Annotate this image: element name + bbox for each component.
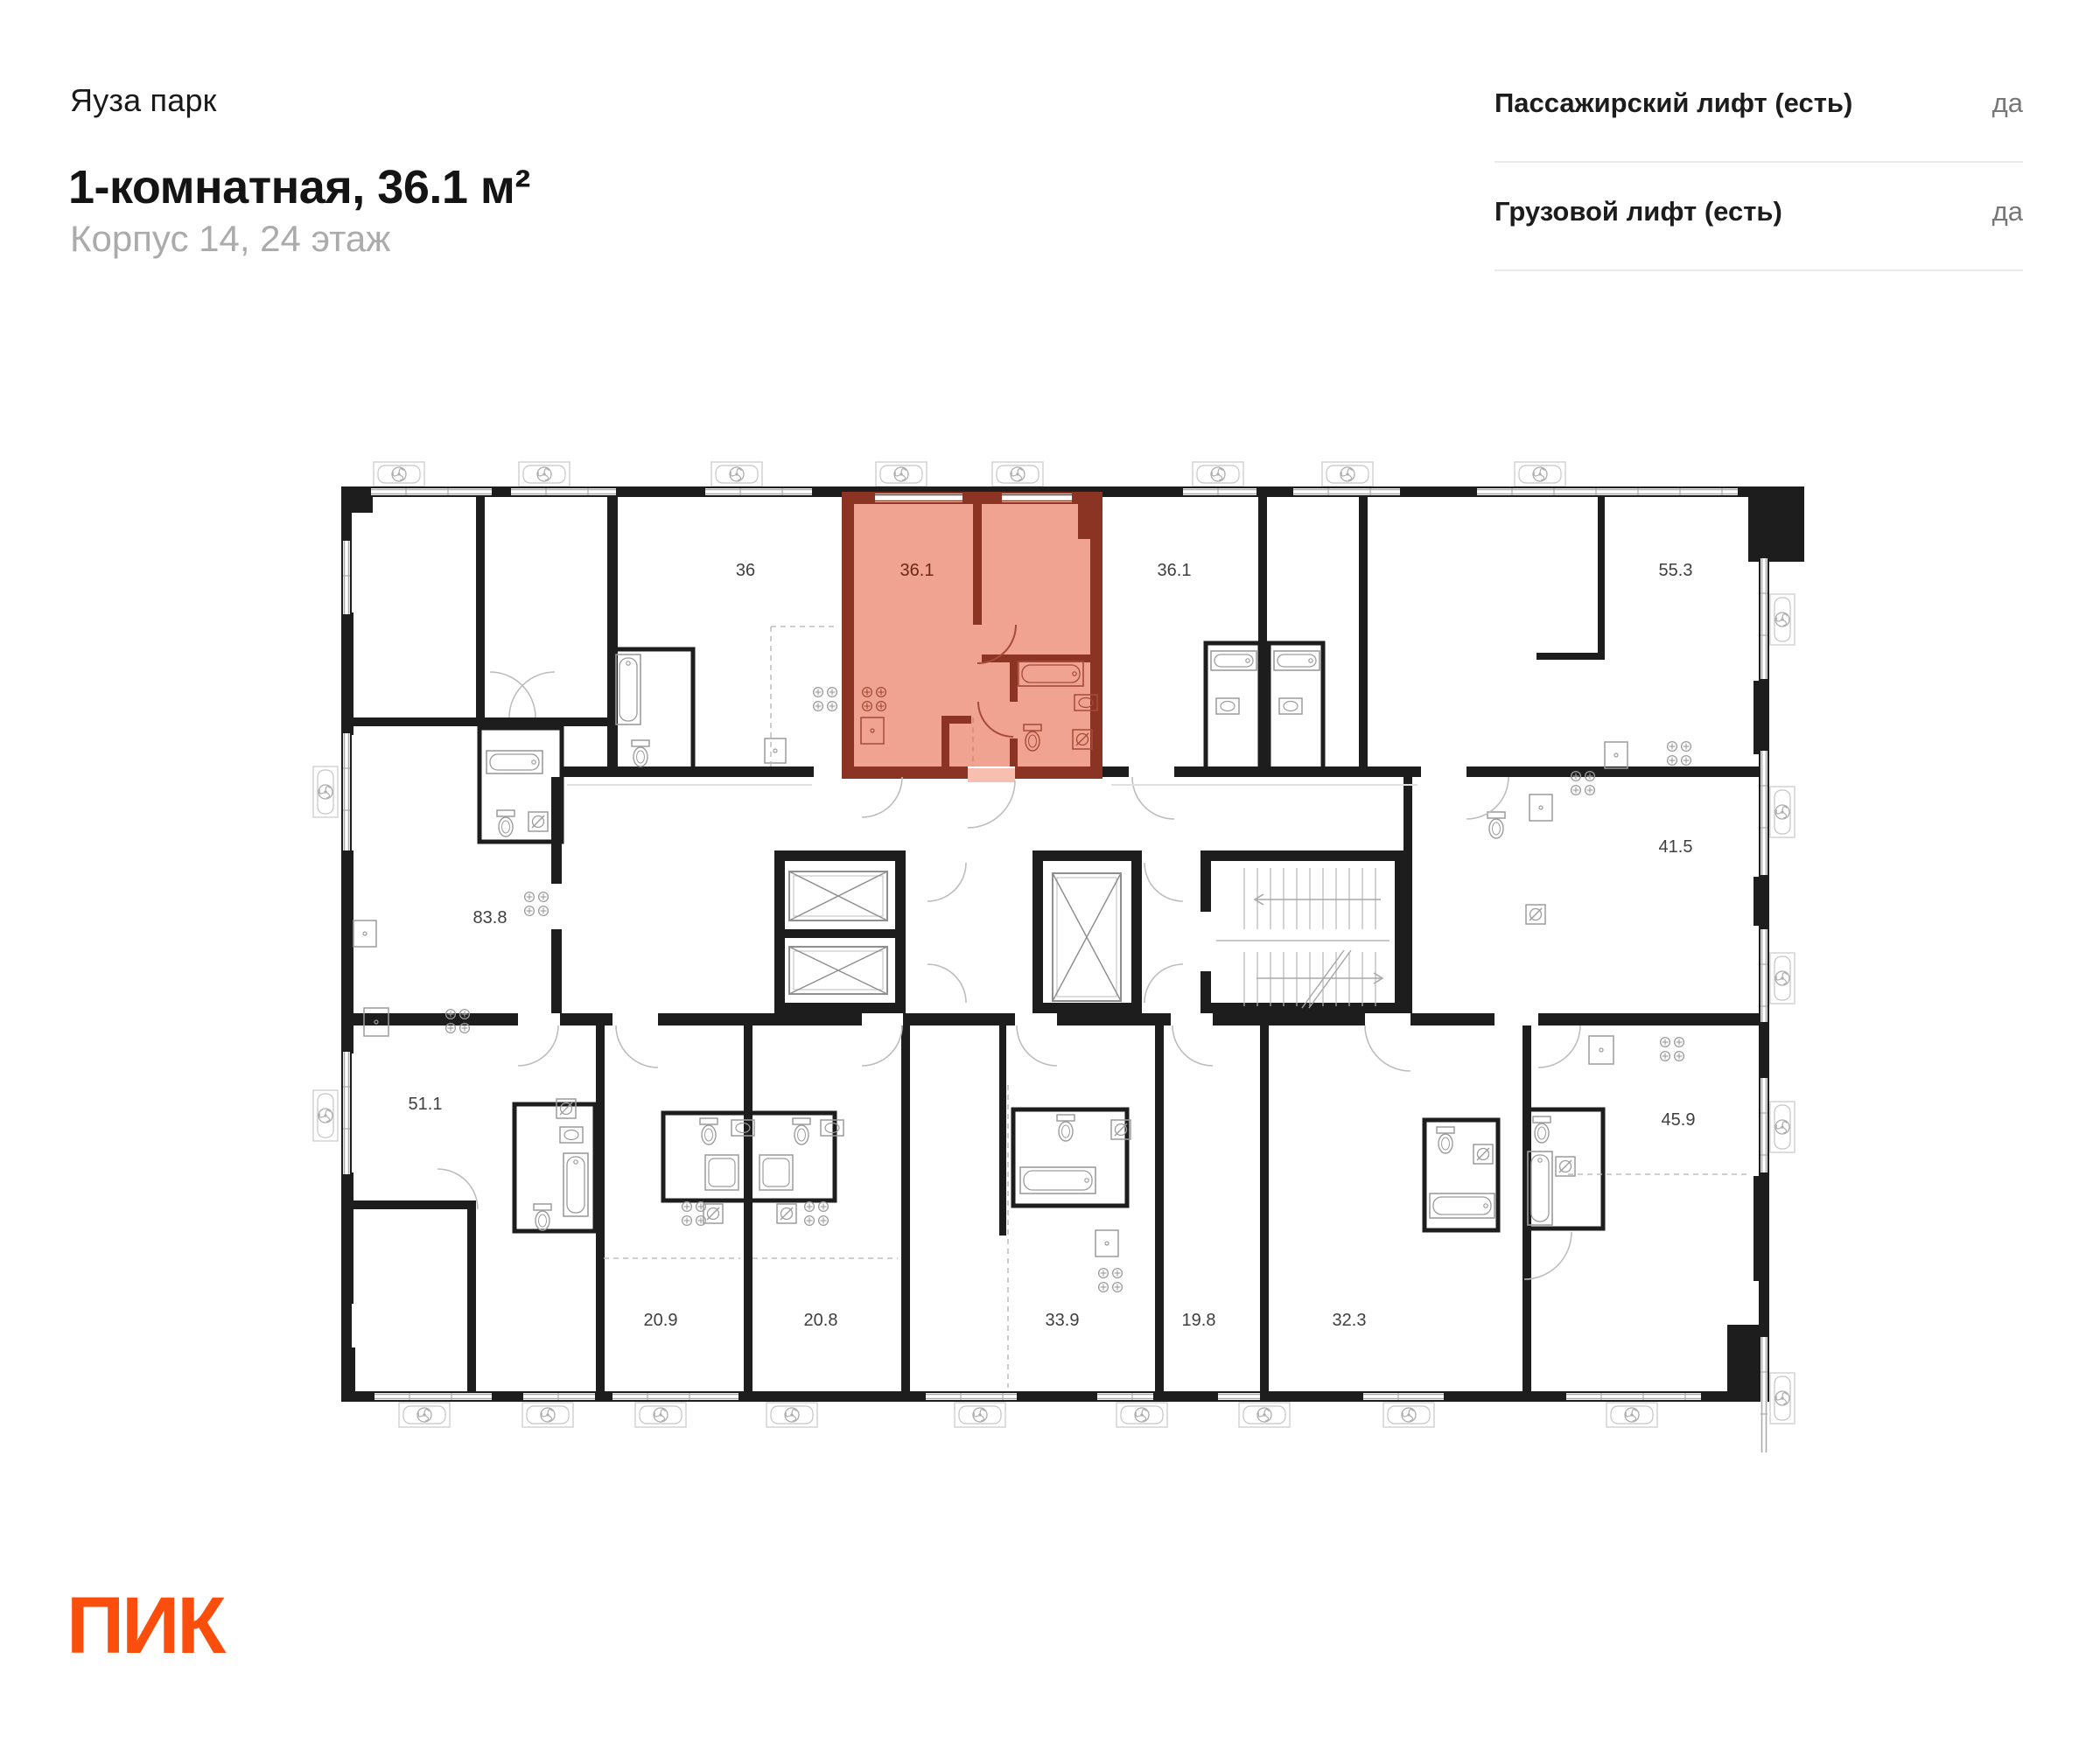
area-label: 33.9 <box>1046 1311 1080 1330</box>
passenger-elevator-value: да <box>1992 84 2023 122</box>
toilet-icon <box>1533 1116 1550 1143</box>
vent-box <box>1515 462 1565 486</box>
stove-icon <box>525 892 549 916</box>
apartment-subtitle: Корпус 14, 24 этаж <box>70 218 390 260</box>
vent-box <box>876 462 927 486</box>
vent-box <box>522 1403 573 1427</box>
area-label: 20.9 <box>644 1311 678 1330</box>
bathtub-icon <box>1430 1193 1494 1218</box>
kitchen-sink-icon <box>765 738 786 763</box>
shower-icon <box>705 1155 738 1190</box>
area-label: 41.5 <box>1659 837 1693 857</box>
vent-box <box>374 462 424 486</box>
vent-box <box>313 766 338 817</box>
door-arc <box>1144 863 1183 901</box>
area-label: 20.8 <box>804 1311 838 1330</box>
door-arc <box>1524 1232 1571 1279</box>
stove-icon <box>1661 1038 1684 1061</box>
bathtub-icon <box>1020 1167 1095 1193</box>
stove-icon <box>1668 742 1691 766</box>
divider <box>1494 161 2023 163</box>
passenger-elevator-label: Пассажирский лифт (есть) <box>1494 84 1852 122</box>
vent-box <box>1116 1403 1167 1427</box>
door-arc <box>927 863 966 901</box>
door-arc <box>927 964 966 1003</box>
bathtub-icon <box>1528 1151 1552 1225</box>
bathtub-icon <box>616 654 640 724</box>
shower-icon <box>759 1155 793 1190</box>
area-label: 36.1 <box>1158 561 1192 580</box>
toilet-icon <box>793 1118 810 1144</box>
washing-machine-icon <box>1556 1157 1575 1176</box>
stove-icon <box>805 1202 829 1226</box>
area-label: 55.3 <box>1659 561 1693 580</box>
door-arc <box>1466 777 1508 819</box>
stove-icon <box>814 688 837 711</box>
vent-box <box>1770 1373 1795 1424</box>
door-arc <box>616 1025 658 1067</box>
toilet-icon <box>1437 1127 1454 1153</box>
door-arc <box>490 672 535 717</box>
vent-box <box>635 1403 686 1427</box>
washbasin-icon <box>1216 698 1239 714</box>
door-arc <box>1538 1025 1580 1067</box>
area-label: 51.1 <box>409 1095 443 1114</box>
highlighted-apartment <box>842 492 1102 782</box>
door-arc <box>518 1025 558 1066</box>
vent-box <box>1383 1403 1434 1427</box>
stove-icon <box>682 1202 706 1226</box>
vent-box <box>1239 1403 1290 1427</box>
vent-box <box>519 462 570 486</box>
vent-box <box>1606 1403 1657 1427</box>
cargo-elevator-value: да <box>1992 192 2023 231</box>
bathtub-icon <box>1274 651 1319 670</box>
vent-box <box>992 462 1043 486</box>
area-label: 36 <box>736 561 755 580</box>
washbasin-icon <box>1279 698 1302 714</box>
kitchen-sink-icon <box>353 920 376 947</box>
door-arc <box>1172 1025 1213 1066</box>
vent-box <box>711 462 762 486</box>
vent-box <box>1770 594 1795 645</box>
toilet-icon <box>632 740 649 766</box>
kitchen-sink-icon <box>1095 1230 1118 1256</box>
door-arc <box>1144 964 1183 1003</box>
door-arc <box>1132 777 1174 819</box>
pik-logo: ПИК <box>66 1585 223 1666</box>
vent-box <box>1770 787 1795 837</box>
elevator-shaft-icon <box>1053 873 1121 1001</box>
door-arc <box>1017 1025 1057 1066</box>
vent-box <box>1770 953 1795 1004</box>
bathtub-icon <box>563 1153 588 1216</box>
cargo-elevator-label: Грузовой лифт (есть) <box>1494 192 1782 231</box>
toilet-icon <box>1487 812 1505 838</box>
door-arc <box>968 780 1015 828</box>
area-label: 32.3 <box>1333 1311 1367 1330</box>
vent-box <box>955 1403 1005 1427</box>
kitchen-sink-icon <box>1605 742 1627 768</box>
passenger-elevator-row: Пассажирский лифт (есть) да <box>1494 84 2023 122</box>
project-name: Яуза парк <box>70 82 217 119</box>
floor-plan-svg: 36 36.1 36.1 55.3 41.5 83.8 51.1 45.9 20… <box>297 437 1864 1496</box>
washing-machine-icon <box>1473 1144 1493 1164</box>
info-panel: Пассажирский лифт (есть) да Грузовой лиф… <box>1494 84 2023 271</box>
bathtub-icon <box>1211 651 1256 670</box>
area-label: 45.9 <box>1662 1110 1696 1130</box>
vent-box <box>1770 1102 1795 1152</box>
elevator-shaft-icon <box>789 871 887 920</box>
apartment-title: 1-комнатная, 36.1 м² <box>68 160 530 214</box>
toilet-icon <box>534 1204 551 1230</box>
door-arc <box>509 672 555 717</box>
kitchen-sink-icon <box>1589 1036 1613 1064</box>
highlighted-area-label: 36.1 <box>900 561 934 580</box>
vent-box <box>399 1403 450 1427</box>
vent-box <box>1322 462 1373 486</box>
vent-box <box>766 1403 817 1427</box>
area-label: 19.8 <box>1182 1311 1216 1330</box>
washbasin-icon <box>560 1127 583 1143</box>
washbasin-icon <box>821 1120 843 1136</box>
kitchen-sink-icon <box>1529 794 1552 821</box>
core <box>774 850 1405 1013</box>
washing-machine-icon <box>556 1099 576 1118</box>
door-arc <box>862 1025 902 1066</box>
toilet-icon <box>497 810 514 836</box>
divider <box>1494 269 2023 271</box>
door-arc <box>1365 1025 1410 1071</box>
area-label: 83.8 <box>473 908 507 927</box>
floor-plan: 36 36.1 36.1 55.3 41.5 83.8 51.1 45.9 20… <box>297 437 1864 1496</box>
washing-machine-icon <box>777 1204 796 1223</box>
vent-box <box>1193 462 1243 486</box>
toilet-icon <box>1057 1115 1074 1141</box>
cargo-elevator-row: Грузовой лифт (есть) да <box>1494 192 2023 231</box>
vent-box <box>313 1090 338 1141</box>
stairs-icon <box>1216 868 1389 1008</box>
stove-icon <box>1099 1269 1123 1292</box>
washing-machine-icon <box>1526 905 1545 924</box>
bathtub-icon <box>486 751 542 773</box>
washing-machine-icon <box>703 1204 723 1223</box>
door-arc <box>862 777 902 817</box>
elevator-shaft-icon <box>789 947 887 994</box>
washing-machine-icon <box>528 812 548 831</box>
toilet-icon <box>700 1118 717 1144</box>
